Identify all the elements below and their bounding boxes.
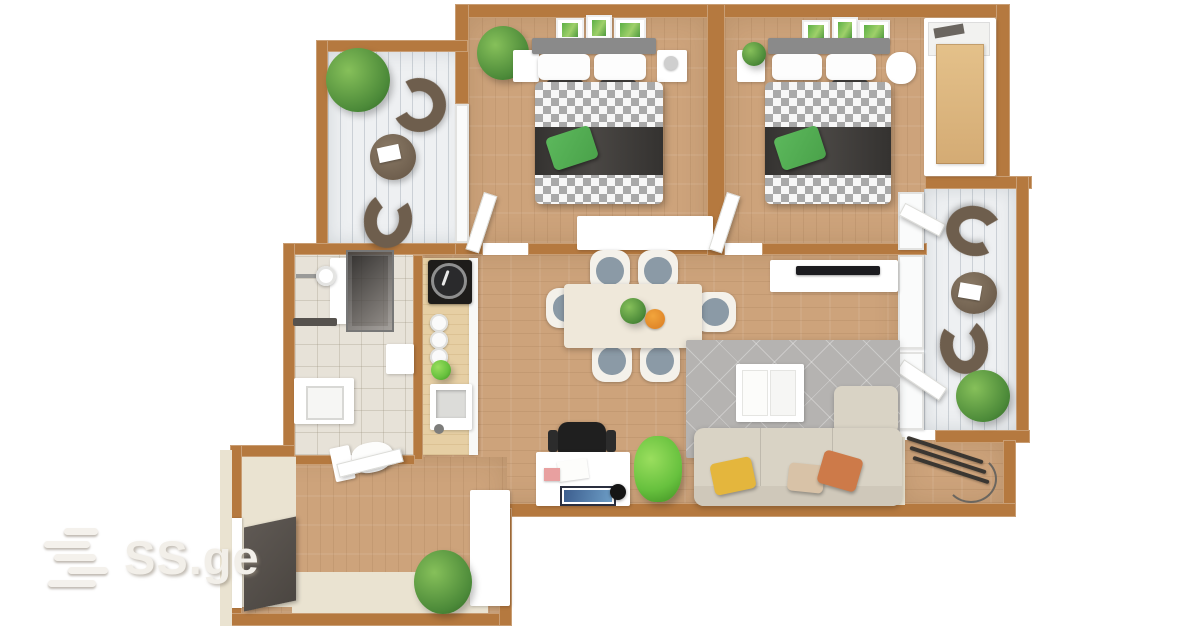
bedroom2-soft-toy xyxy=(886,52,916,84)
wall-top-main xyxy=(455,4,1008,18)
bedroom1-lamp xyxy=(664,56,678,70)
watermark-bar xyxy=(48,580,96,587)
wall-hall-bottom xyxy=(230,613,512,626)
balcony-r-plant xyxy=(956,370,1010,422)
coffee-table-book-right xyxy=(770,370,796,416)
desk-monitor xyxy=(560,486,616,506)
kitchen-plant xyxy=(431,360,451,380)
sink-basin xyxy=(436,390,466,418)
watermark: SS.ge xyxy=(38,528,260,587)
wall-bathroom-bottom-a xyxy=(295,455,333,465)
plate-1 xyxy=(430,314,448,332)
shower-cabin xyxy=(346,250,394,332)
bedroom2-nightstand-plant xyxy=(742,42,766,66)
bedroom1-nightstand-left xyxy=(513,50,539,82)
bedroom1-headboard xyxy=(532,38,656,54)
fruit-bowl xyxy=(645,309,665,329)
window-bedroom1-balcony xyxy=(455,104,469,243)
watermark-bar xyxy=(54,554,96,561)
watermark-text: SS.ge xyxy=(124,530,260,585)
washing-machine-door xyxy=(306,386,344,420)
bedroom1-pillow-right xyxy=(594,54,646,80)
watermark-logo-icon xyxy=(38,528,108,587)
window-living-balcony xyxy=(898,255,924,349)
hallway-plant xyxy=(414,550,472,614)
wall-bathroom-left xyxy=(283,243,295,468)
watermark-bar xyxy=(64,528,98,535)
tv-console xyxy=(770,260,898,292)
watermark-bar xyxy=(68,567,108,574)
bathroom-shelf xyxy=(293,318,337,326)
bedroom2-headboard xyxy=(768,38,890,54)
wall-bathroom-kitchen-divider xyxy=(413,255,423,460)
desk-plant xyxy=(634,436,682,502)
desk-papers xyxy=(557,458,589,482)
desk-lamp xyxy=(610,484,626,500)
pan xyxy=(431,263,467,299)
balcony-tl-plant xyxy=(326,48,390,112)
wall-bedroom2-right xyxy=(996,4,1010,186)
wall-balcony-tl-top xyxy=(316,40,468,52)
wall-bedroom1-left-upper xyxy=(455,4,469,104)
sofa-chaise xyxy=(834,386,898,434)
office-chair-arm-left xyxy=(548,430,558,452)
bedroom1-dresser xyxy=(577,216,713,250)
shower-head xyxy=(316,266,336,286)
sink-faucet xyxy=(434,424,444,434)
desk-notebook xyxy=(544,468,560,481)
drying-rack-wire xyxy=(945,455,997,503)
wall-balcony-right-outer xyxy=(1016,176,1029,443)
plate-2 xyxy=(430,331,448,349)
watermark-bar xyxy=(44,541,90,548)
office-chair-arm-right xyxy=(606,430,616,452)
bedroom2-pillow-right xyxy=(826,54,876,80)
floor-plan-canvas: SS.ge xyxy=(0,0,1200,640)
coffee-table-book-left xyxy=(742,370,768,416)
tv xyxy=(796,266,880,275)
hallway-cabinet xyxy=(470,490,510,606)
bathroom-cabinet xyxy=(386,344,414,374)
bedroom2-pillow-left xyxy=(772,54,822,80)
wardrobe-wood-front xyxy=(936,44,984,164)
dining-centerpiece-plant xyxy=(620,298,646,324)
bedroom1-pillow-left xyxy=(538,54,590,80)
